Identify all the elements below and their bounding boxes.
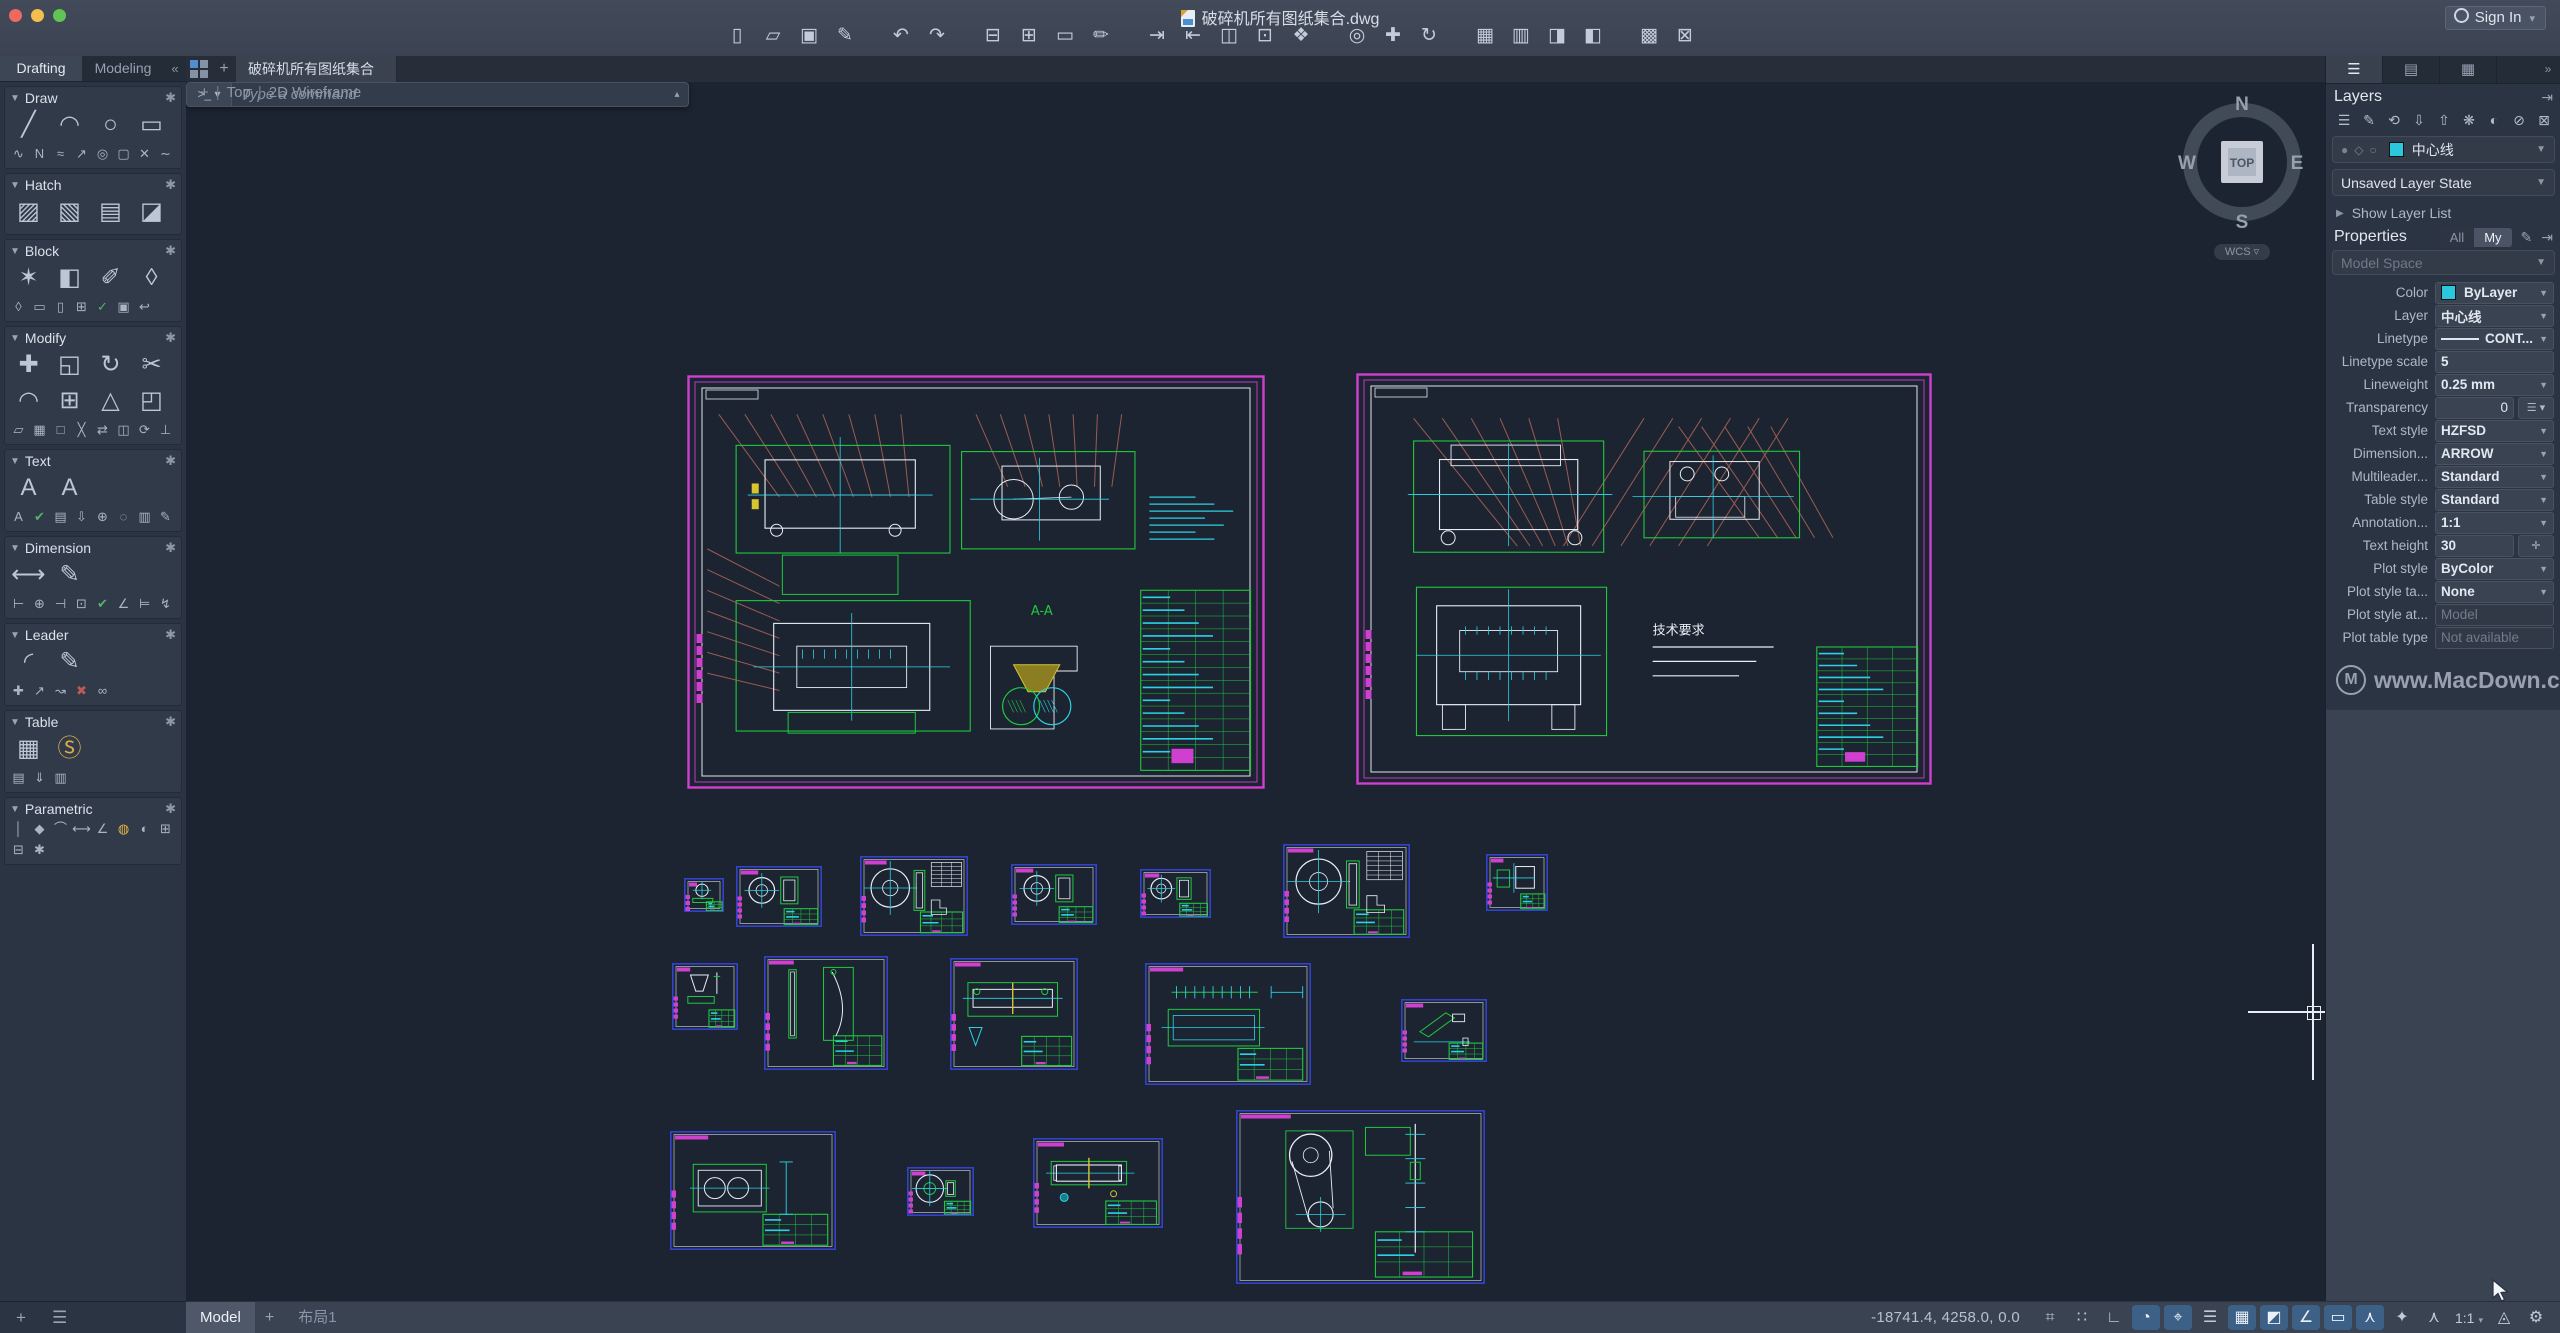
section-header-leader[interactable]: ▼Leader✱ [8, 626, 178, 644]
triangle-down-icon: ▼ [10, 246, 20, 257]
settings-gear-icon[interactable]: ⚙ [2522, 1305, 2550, 1330]
filter-my-button[interactable]: My [2474, 228, 2511, 247]
gear-icon[interactable]: ✱ [165, 714, 176, 730]
triangle-down-icon: ▼ [10, 804, 20, 815]
chevron-down-icon: ▼ [2539, 426, 2548, 436]
properties-panel-title: Properties [2334, 228, 2407, 246]
zoom-icon[interactable]: ◎ [1342, 22, 1372, 50]
chevron-down-icon: ▼ [2539, 380, 2548, 390]
text-style-icon[interactable]: ▥ [134, 506, 155, 527]
sidebar-tabs: ☰▤▦» [2326, 56, 2560, 84]
toolbar-group-5: ◎✚↻ [1342, 22, 1444, 52]
drawing-sheet-small[interactable] [684, 878, 724, 912]
continue-dim-icon[interactable]: ⊨ [134, 593, 155, 614]
property-label: Text height [2326, 538, 2435, 553]
line-icon[interactable]: ╱ [8, 107, 49, 143]
section-header-dimension[interactable]: ▼Dimension✱ [8, 539, 178, 557]
lineweight-control[interactable]: 0.25 mm▼ [2435, 374, 2554, 396]
section-header-parametric[interactable]: ▼Parametric✱ [8, 800, 178, 818]
viewport-controls[interactable]: +|Top|2D Wireframe [200, 84, 361, 101]
parallel-icon[interactable]: ≈ [50, 143, 71, 164]
align-icon[interactable]: ◫ [113, 419, 134, 440]
gear-icon[interactable]: ✱ [165, 453, 176, 469]
chevron-down-icon: ▼ [2539, 587, 2548, 597]
compass-north[interactable]: N [2235, 94, 2249, 115]
freeze-layer-icon[interactable]: ❋ [2458, 110, 2480, 130]
tangent-constraint-icon[interactable]: ⌒ [50, 818, 71, 839]
section-header-block[interactable]: ▼Block✱ [8, 242, 178, 260]
find-text-icon[interactable]: ◌ [113, 506, 134, 527]
merge-leaders-icon[interactable]: ∞ [92, 680, 113, 701]
save-icon[interactable]: ▣ [794, 22, 824, 50]
property-label: Lineweight [2326, 377, 2435, 392]
multileader-icon[interactable]: ◜ [8, 644, 49, 680]
import-icon[interactable]: ⇥ [1142, 22, 1172, 50]
layer-toolbar: ☰✎⟲⇩⇧❋◐⊘⊠ [2326, 110, 2560, 136]
current-layer-dropdown[interactable]: ●◇○ 中心线 ▼ [2332, 136, 2555, 163]
section-modify: ▼Modify✱✚◱↻✂◠⊞△◰▱▦□╳⇄◫⟳⊥ [4, 326, 182, 445]
plot-style-control[interactable]: ByColor▼ [2435, 558, 2554, 580]
toolbar-group-6: ▦▥◨◧ [1470, 22, 1608, 52]
layer-state-dropdown[interactable]: Unsaved Layer State▼ [2332, 169, 2555, 196]
scale-icon[interactable]: □ [50, 419, 71, 440]
view-compass[interactable]: N E S W TOP [2172, 86, 2312, 238]
color-control[interactable]: ByLayer▼ [2435, 282, 2554, 304]
gear-icon[interactable]: ✱ [165, 540, 176, 556]
new-file-icon[interactable]: ▯ [722, 22, 752, 50]
linetype-scale-control[interactable]: 5 [2435, 351, 2554, 373]
section-title: Modify [25, 330, 66, 346]
page-setup-icon[interactable]: ▭ [1050, 22, 1080, 50]
multileader--control[interactable]: Standard▼ [2435, 466, 2554, 488]
drawing-sheet-small[interactable] [1401, 999, 1487, 1062]
tab-layers[interactable]: ☰ [2326, 56, 2383, 83]
export-table-icon[interactable]: ⇓ [29, 767, 50, 788]
add-view-icon[interactable]: + [16, 1308, 26, 1328]
move-icon[interactable]: ✚ [8, 347, 49, 383]
coincident-constraint-icon[interactable]: ◆ [29, 818, 50, 839]
spline-icon[interactable]: ∿ [8, 143, 29, 164]
remove-leader-icon[interactable]: ✖ [71, 680, 92, 701]
tab-references[interactable]: ▤ [2383, 56, 2440, 83]
layer-off-icon[interactable]: ◐ [2483, 110, 2505, 130]
lock-layer-icon[interactable]: ⊘ [2508, 110, 2530, 130]
dwg-compare-icon[interactable]: ◫ [1214, 22, 1244, 50]
plot-style-at--control: Model [2435, 604, 2554, 626]
start-tab-icon[interactable] [186, 56, 212, 82]
toolbar-group-2: ↶↷ [886, 22, 952, 52]
chevron-down-icon: ▾ [2478, 1315, 2483, 1325]
property-row-plot-style-ta-: Plot style ta...None▼ [2326, 580, 2560, 603]
property-row-annotation-: Annotation...1:1▼ [2326, 511, 2560, 534]
reference-icon[interactable]: ❖ [1286, 22, 1316, 50]
ellipse-icon[interactable]: ◎ [92, 143, 113, 164]
chevron-down-icon: ▼ [2539, 564, 2548, 574]
jogged-dim-icon[interactable]: ↯ [155, 593, 176, 614]
section-header-hatch[interactable]: ▼Hatch✱ [8, 176, 178, 194]
palette-tab-drafting[interactable]: Drafting [0, 56, 82, 81]
save-as-icon[interactable]: ✎ [830, 22, 860, 50]
drawing-sheet-small[interactable] [672, 963, 738, 1030]
drawing-sheet-small[interactable] [1236, 1110, 1485, 1284]
filter-all-button[interactable]: All [2440, 228, 2474, 247]
layers-panel-title: Layers [2334, 88, 2382, 106]
data-link-icon[interactable]: Ⓢ [49, 731, 90, 767]
insert-block-icon[interactable]: ✶ [8, 260, 49, 296]
toolbar-group-3: ⊟⊞▭✏ [978, 22, 1116, 52]
add-layout-button[interactable]: + [255, 1309, 284, 1327]
svg-text:TOP: TOP [2230, 156, 2254, 170]
annotation-auto-scale-toggle[interactable]: ⋏ [2420, 1305, 2448, 1330]
drawing-sheet-small[interactable] [1033, 1138, 1163, 1228]
block-settings-icon[interactable]: ▣ [113, 296, 134, 317]
orbit-icon[interactable]: ↻ [1414, 22, 1444, 50]
copy-icon[interactable]: ◱ [49, 347, 90, 383]
properties-rows: ColorByLayer▼Layer中心线▼LinetypeCONT...▼Li… [2326, 281, 2560, 649]
status-toggles: ⌗∷∟◔⌖☰▦◩∠▭⋏✦⋏ [2036, 1305, 2448, 1330]
drawing-sheet-small[interactable] [736, 866, 822, 927]
update-table-icon[interactable]: ▥ [50, 767, 71, 788]
section-block: ▼Block✱✶◧✐◊◊▭▯⊞✓▣↩ [4, 239, 182, 322]
drawing-sheet-small[interactable] [1486, 854, 1548, 911]
array-icon[interactable]: ⊞ [49, 383, 90, 419]
property-label: Text style [2326, 423, 2435, 438]
color-swatch [2441, 285, 2456, 300]
isolate-layer-icon[interactable]: ⇩ [2408, 110, 2430, 130]
drawing-sheet-large[interactable]: A-A [687, 375, 1265, 789]
drawing-sheet-large[interactable]: 技术要求 [1356, 373, 1932, 785]
constraint-settings-icon[interactable]: ✱ [29, 839, 50, 860]
vertical-constraint-icon[interactable]: │ [8, 818, 29, 839]
section-title: Dimension [25, 540, 91, 556]
plot-style-ta--control[interactable]: None▼ [2435, 581, 2554, 603]
redo-icon[interactable]: ↷ [922, 22, 952, 50]
object-snap-3d-toggle[interactable]: ⋏ [2356, 1305, 2384, 1330]
palette-sections: ▼Draw✱╱◠○▭∿N≈↗◎▢✕∼▼Hatch✱▨▧▤◪▼Block✱✶◧✐◊… [0, 82, 186, 1301]
annotation-visibility-icon[interactable]: ◬ [2490, 1305, 2518, 1330]
drawing-sheet-small[interactable] [1283, 844, 1410, 938]
property-row-linetype: LinetypeCONT...▼ [2326, 327, 2560, 350]
chevron-down-icon: ▼ [2536, 144, 2546, 155]
edit-dimension-icon[interactable]: ✎ [49, 557, 90, 593]
field-icon[interactable]: ⊕ [92, 506, 113, 527]
reset-block-icon[interactable]: ↩ [134, 296, 155, 317]
section-header-modify[interactable]: ▼Modify✱ [8, 329, 178, 347]
section-title: Table [25, 714, 58, 730]
sync-attributes-icon[interactable]: ✓ [92, 296, 113, 317]
object-snap-toggle[interactable]: ∠ [2292, 1305, 2320, 1330]
property-label: Annotation... [2326, 515, 2435, 530]
edit-layer-icon[interactable]: ✎ [2358, 110, 2380, 130]
baseline-dim-icon[interactable]: ⊣ [50, 593, 71, 614]
show-layer-list-toggle[interactable]: ▶Show Layer List [2326, 202, 2560, 224]
person-icon [2454, 8, 2469, 23]
new-layer-icon[interactable]: ☰ [2333, 110, 2355, 130]
circle-icon[interactable]: ○ [90, 107, 131, 143]
align-leaders-icon[interactable]: ↗ [29, 680, 50, 701]
toolbar-group-7: ▩⊠ [1634, 22, 1700, 52]
palette-tab-modeling[interactable]: Modeling [82, 56, 164, 81]
section-title: Hatch [25, 177, 62, 193]
layer-previous-icon[interactable]: ⟲ [2383, 110, 2405, 130]
dimension-icon[interactable]: ⟷ [8, 557, 49, 593]
export-icon[interactable]: ⇤ [1178, 22, 1208, 50]
edit-block-icon[interactable]: ✐ [90, 260, 131, 296]
section-title: Leader [25, 627, 69, 643]
property-label: Table style [2326, 492, 2435, 507]
pdf-text-icon[interactable]: ⇩ [71, 506, 92, 527]
transparency-bylayer-button[interactable]: ☰▾ [2518, 397, 2554, 419]
snap-mode-toggle[interactable]: ∷ [2068, 1305, 2096, 1330]
content-palette-icon[interactable]: ◧ [1578, 22, 1608, 50]
angle-constraint-icon[interactable]: ∠ [92, 818, 113, 839]
drawing-sheet-small[interactable] [860, 856, 968, 936]
svg-text:A-A: A-A [1031, 604, 1053, 619]
explode-icon[interactable]: ▦ [29, 419, 50, 440]
gear-icon[interactable]: ✱ [165, 330, 176, 346]
ordinate-dim-icon[interactable]: ⊡ [71, 593, 92, 614]
point-icon[interactable]: ✕ [134, 143, 155, 164]
lock-constraint-icon[interactable]: ◍ [113, 818, 134, 839]
property-row-color: ColorByLayer▼ [2326, 281, 2560, 304]
property-row-linetype-scale: Linetype scale5 [2326, 350, 2560, 373]
property-label: Plot style at... [2326, 607, 2435, 622]
offset-icon[interactable]: ▱ [8, 419, 29, 440]
chevron-down-icon: ▼ [2539, 495, 2548, 505]
break-icon[interactable]: ╳ [71, 419, 92, 440]
section-leader: ▼Leader✱◜✎✚↗↝✖∞ [4, 623, 182, 706]
collect-leaders-icon[interactable]: ↝ [50, 680, 71, 701]
drawing-sheet-small[interactable] [1140, 869, 1211, 918]
dimension--control[interactable]: ARROW▼ [2435, 443, 2554, 465]
edit-leader-icon[interactable]: ✎ [49, 644, 90, 680]
show-constraints-icon[interactable]: ⊞ [155, 818, 176, 839]
macdown-logo: M [2336, 665, 2366, 695]
panel-autohide-icon[interactable]: ⇥ [2541, 229, 2553, 246]
panel-autohide-icon[interactable]: ⇥ [2541, 89, 2553, 106]
gear-icon[interactable]: ✱ [165, 801, 176, 817]
batch-plot-icon[interactable]: ⊞ [1014, 22, 1044, 50]
sidebar-more-icon[interactable]: » [2535, 56, 2560, 83]
sidebar-empty-area [2326, 709, 2560, 1302]
text-columns-icon[interactable]: ▤ [50, 506, 71, 527]
compass-south[interactable]: S [2236, 212, 2249, 233]
linetype-control[interactable]: CONT...▼ [2435, 328, 2554, 350]
document-tabbar: + 破碎机所有图纸集合 [186, 56, 2325, 83]
table-style-icon[interactable]: ▤ [8, 767, 29, 788]
radius-constraint-icon[interactable]: ◐ [134, 818, 155, 839]
drawing-sheet-small[interactable] [1145, 963, 1311, 1085]
table-style-control[interactable]: Standard▼ [2435, 489, 2554, 511]
property-row-plot-table-type: Plot table typeNot available [2326, 626, 2560, 649]
create-block-icon[interactable]: ◧ [49, 260, 90, 296]
property-row-plot-style: Plot styleByColor▼ [2326, 557, 2560, 580]
layout-tab[interactable]: 布局1 [284, 1302, 350, 1333]
plot-style-icon[interactable]: ✏ [1086, 22, 1116, 50]
hatch-icon[interactable]: ▨ [8, 194, 49, 230]
text-style-control[interactable]: HZFSD▼ [2435, 420, 2554, 442]
polar-tracking-toggle[interactable]: ◔ [2132, 1305, 2160, 1330]
drawing-sheet-small[interactable] [950, 958, 1078, 1070]
mirror-icon[interactable]: △ [90, 383, 131, 419]
etransmit-icon[interactable]: ⊡ [1250, 22, 1280, 50]
section-header-text[interactable]: ▼Text✱ [8, 452, 178, 470]
section-hatch: ▼Hatch✱▨▧▤◪ [4, 173, 182, 235]
stretch-icon[interactable]: ◰ [131, 383, 172, 419]
hide-constraints-icon[interactable]: ⊟ [8, 839, 29, 860]
gear-icon[interactable]: ✱ [165, 177, 176, 193]
update-icon[interactable]: ⟳ [134, 419, 155, 440]
text-height-input[interactable]: 30 [2435, 535, 2514, 557]
hatch-edit-icon[interactable]: ▧ [49, 194, 90, 230]
drawing-tab[interactable]: 破碎机所有图纸集合 [236, 56, 397, 82]
reference-manager-icon[interactable]: ▥ [1506, 22, 1536, 50]
boundary-icon[interactable]: ◪ [131, 194, 172, 230]
property-row-table-style: Table styleStandard▼ [2326, 488, 2560, 511]
viewport-add-button[interactable]: + [200, 84, 209, 101]
viewport-style-label[interactable]: 2D Wireframe [269, 84, 362, 101]
triangle-down-icon: ▼ [10, 543, 20, 554]
quick-access-toolbar: ▯▱▣✎↶↷⊟⊞▭✏⇥⇤◫⊡❖◎✚↻▦▥◨◧▩⊠ [722, 22, 1700, 52]
trim-icon[interactable]: ✂ [131, 347, 172, 383]
drawing-sheet-small[interactable] [907, 1167, 974, 1216]
transparency-toggle-toggle[interactable]: ▦ [2228, 1305, 2256, 1330]
dynamic-input-toggle[interactable]: ⌖ [2164, 1305, 2192, 1330]
section-header-table[interactable]: ▼Table✱ [8, 713, 178, 731]
angular-dim-icon[interactable]: ∠ [113, 593, 134, 614]
triangle-down-icon: ▼ [10, 333, 20, 344]
fillet-icon[interactable]: ◠ [8, 383, 49, 419]
compass-west[interactable]: W [2178, 153, 2196, 174]
mouse-cursor [2489, 1278, 2513, 1304]
drawing-sheet-small[interactable] [670, 1131, 836, 1250]
pickbox [2307, 1006, 2321, 1020]
drawing-sheet-small[interactable] [1011, 864, 1097, 925]
layer-control[interactable]: 中心线▼ [2435, 305, 2554, 327]
property-label: Dimension... [2326, 446, 2435, 461]
attribute-tag-icon[interactable]: ◊ [8, 296, 29, 317]
drawing-sheet-small[interactable] [764, 956, 888, 1070]
section-dimension: ▼Dimension✱⟷✎⊢⊕⊣⊡✔∠⊨↯ [4, 536, 182, 619]
erase-icon[interactable]: ⊥ [155, 419, 176, 440]
compass-east[interactable]: E [2291, 153, 2304, 174]
gradient-icon[interactable]: ▤ [90, 194, 131, 230]
edit-text-icon[interactable]: A [49, 470, 90, 506]
add-leader-icon[interactable]: ✚ [8, 680, 29, 701]
join-icon[interactable]: ⇄ [92, 419, 113, 440]
tool-palette: DraftingModeling« ▼Draw✱╱◠○▭∿N≈↗◎▢✕∼▼Hat… [0, 56, 187, 1333]
single-line-text-icon[interactable]: A [8, 506, 29, 527]
define-attribute-icon[interactable]: ◊ [131, 260, 172, 296]
section-title: Text [25, 453, 51, 469]
property-label: Plot style ta... [2326, 584, 2435, 599]
property-label: Color [2326, 285, 2435, 300]
tab-sheets[interactable]: ▦ [2440, 56, 2497, 83]
properties-filter-toggle[interactable]: AllMy [2440, 228, 2512, 247]
coordinates-readout: -18741.4, 4258.0, 0.0 [1871, 1309, 2020, 1326]
pick-height-button[interactable]: ✛ [2518, 535, 2554, 557]
annotation--control[interactable]: 1:1▼ [2435, 512, 2554, 534]
undo-icon[interactable]: ↶ [886, 22, 916, 50]
purge-icon[interactable]: ⊠ [1670, 22, 1700, 50]
add-block-icon[interactable]: ⊞ [71, 296, 92, 317]
check-dim-icon[interactable]: ✔ [92, 593, 113, 614]
gear-icon[interactable]: ✱ [165, 627, 176, 643]
layer-translator-icon[interactable]: ▩ [1634, 22, 1664, 50]
new-drawing-tab-button[interactable]: + [212, 56, 236, 82]
tool-sets-icon[interactable]: ▦ [1470, 22, 1500, 50]
diameter-dim-icon[interactable]: ⊕ [29, 593, 50, 614]
lineweight-display-toggle[interactable]: ☰ [2196, 1305, 2224, 1330]
multiline-text-icon[interactable]: A [8, 470, 49, 506]
selection-cycling-toggle[interactable]: ◩ [2260, 1305, 2288, 1330]
space-selector[interactable]: Model Space▼ [2332, 250, 2555, 275]
property-label: Linetype scale [2326, 354, 2435, 369]
annotation-scale-selector[interactable]: 1:1▾ [2452, 1310, 2486, 1326]
print-icon[interactable]: ⊟ [978, 22, 1008, 50]
property-row-text-height: Text height30✛ [2326, 534, 2560, 557]
transparency-field[interactable]: 0 [2435, 397, 2514, 419]
layer-status-icons: ●◇○ [2341, 143, 2383, 157]
arc-icon[interactable]: ◠ [49, 107, 90, 143]
ortho-mode-toggle[interactable]: ∟ [2100, 1305, 2128, 1330]
rotate-icon[interactable]: ↻ [90, 347, 131, 383]
rectangle-icon[interactable]: ▭ [131, 107, 172, 143]
section-header-draw[interactable]: ▼Draw✱ [8, 89, 178, 107]
command-expand-icon[interactable]: ▴ [666, 89, 688, 100]
write-block-icon[interactable]: ▭ [29, 296, 50, 317]
open-file-icon[interactable]: ▱ [758, 22, 788, 50]
collapse-palette-icon[interactable]: « [164, 56, 186, 81]
chevron-down-icon: ▼ [2539, 518, 2548, 528]
linear-dim-icon[interactable]: ⊢ [8, 593, 29, 614]
chevron-down-icon: ▼ [2536, 177, 2546, 188]
edit-properties-icon[interactable]: ✎ [2521, 229, 2533, 246]
chevron-down-icon: ▾ [2529, 13, 2535, 25]
ray-icon[interactable]: ↗ [71, 143, 92, 164]
polyline-icon[interactable]: N [29, 143, 50, 164]
gear-icon[interactable]: ✱ [165, 243, 176, 259]
property-row-transparency: Transparency0☰▾ [2326, 396, 2560, 419]
polygon-icon[interactable]: ▢ [113, 143, 134, 164]
toolbar-group-4: ⇥⇤◫⊡❖ [1142, 22, 1316, 52]
chevron-down-icon: ▼ [2539, 288, 2548, 298]
save-block-icon[interactable]: ▯ [50, 296, 71, 317]
grid-mode-toggle[interactable]: ⌗ [2036, 1305, 2064, 1330]
table-icon[interactable]: ▦ [8, 731, 49, 767]
model-tab[interactable]: Model [186, 1302, 255, 1333]
pan-icon[interactable]: ✚ [1378, 22, 1408, 50]
drawing-canvas[interactable]: +|Top|2D Wireframe N E S W TOP WCS ▿ A-A… [186, 82, 2325, 1302]
gear-icon[interactable]: ✱ [165, 90, 176, 106]
snap-tracking-toggle[interactable]: ▭ [2324, 1305, 2352, 1330]
wcs-selector[interactable]: WCS ▿ [2214, 244, 2270, 260]
auto-snap-toggle[interactable]: ✦ [2388, 1305, 2416, 1330]
section-draw: ▼Draw✱╱◠○▭∿N≈↗◎▢✕∼ [4, 86, 182, 169]
unisolate-layer-icon[interactable]: ⇧ [2433, 110, 2455, 130]
layer-color-swatch[interactable] [2389, 142, 2404, 157]
viewport-view-label[interactable]: Top [227, 84, 251, 101]
sign-in-button[interactable]: Sign In▾ [2445, 6, 2546, 30]
design-center-icon[interactable]: ◨ [1542, 22, 1572, 50]
view-list-icon[interactable]: ☰ [52, 1308, 67, 1328]
section-title: Draw [25, 90, 58, 106]
pdf-import-icon[interactable]: ✎ [155, 506, 176, 527]
spell-check-icon[interactable]: ✔ [29, 506, 50, 527]
dimensional-constraint-icon[interactable]: ⟷ [71, 818, 92, 839]
unlock-layer-icon[interactable]: ⊠ [2533, 110, 2555, 130]
revcloud-icon[interactable]: ∼ [155, 143, 176, 164]
